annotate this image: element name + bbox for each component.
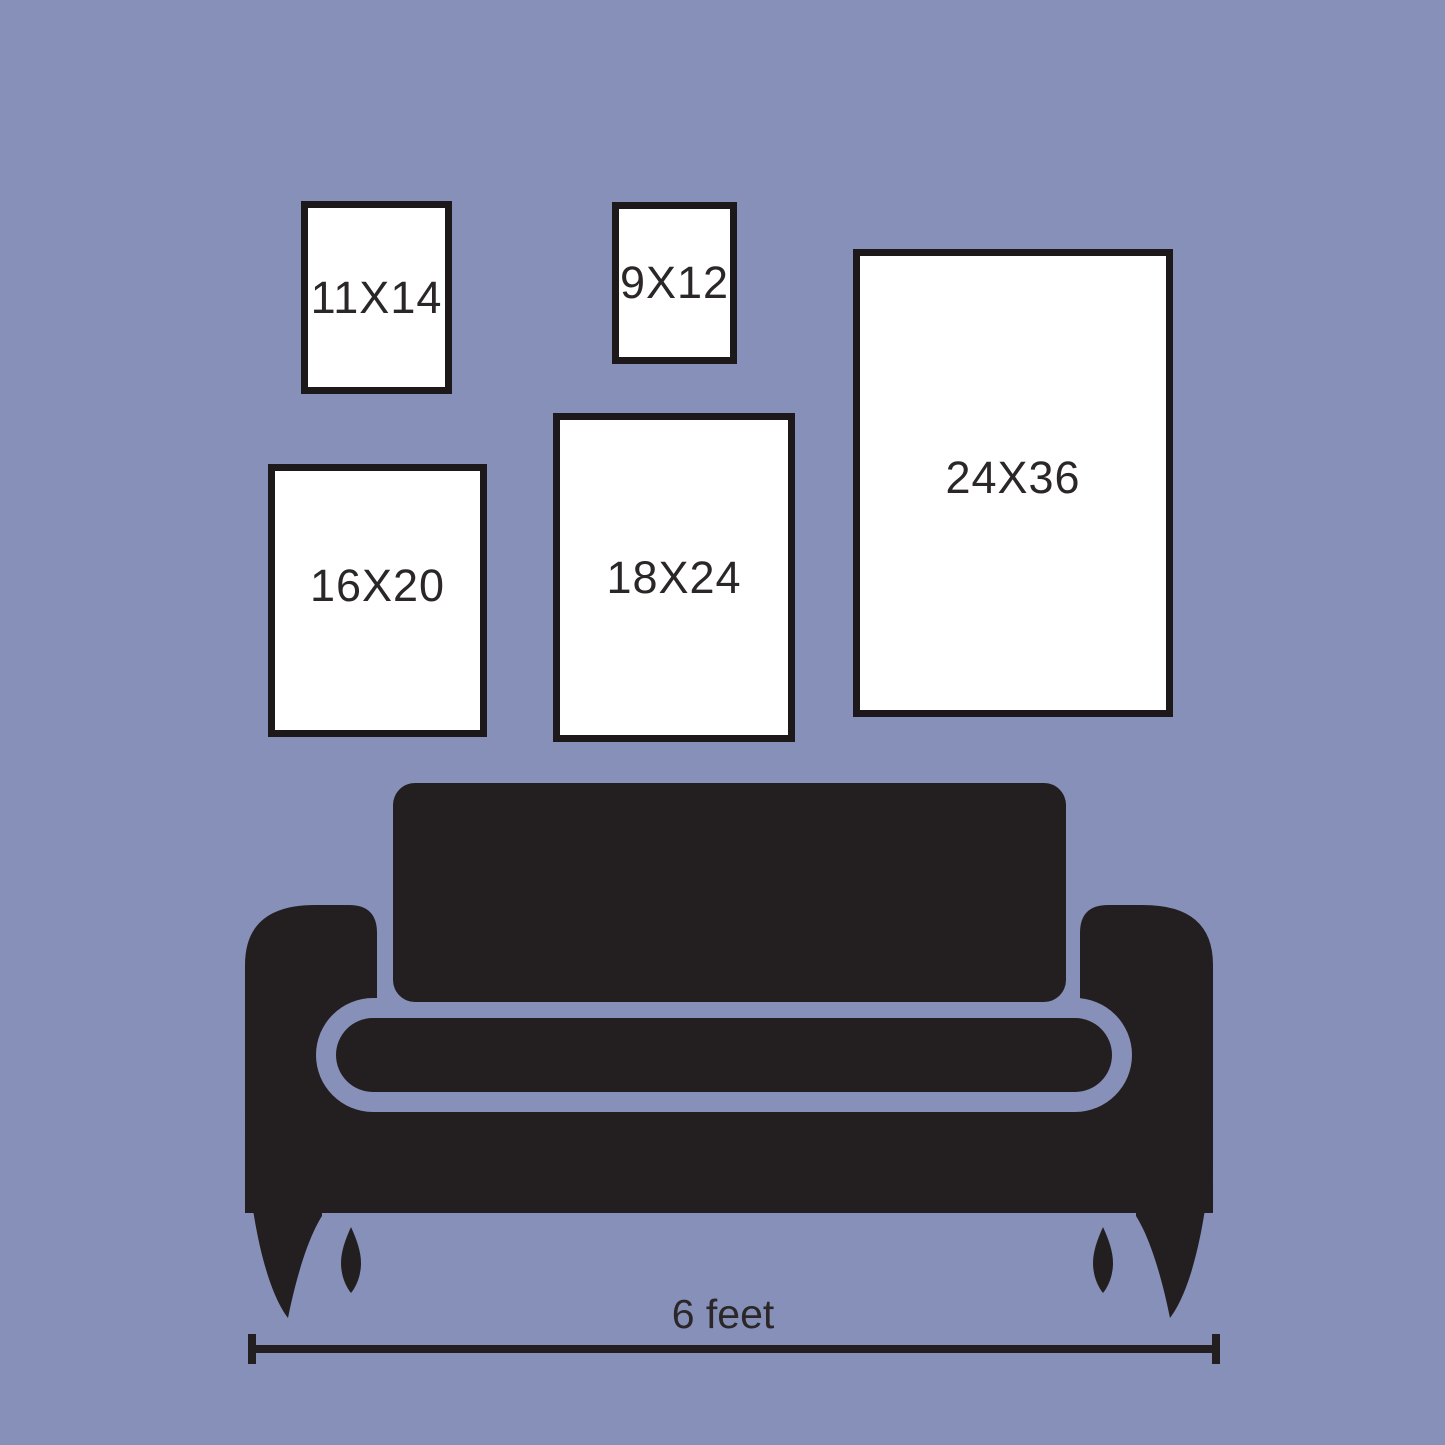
size-frame-label: 11X14	[311, 272, 443, 324]
size-frame-11x14: 11X14	[301, 201, 452, 394]
measurement-label: 6 feet	[672, 1291, 775, 1337]
sofa-right-leg	[1136, 1110, 1213, 1318]
size-frame-label: 9X12	[620, 257, 729, 309]
size-frame-label: 24X36	[945, 452, 1080, 504]
size-frame-18x24: 18X24	[553, 413, 795, 742]
size-guide-diagram: 6 feet 11X14 9X12 16X20 18X24 24X36	[0, 0, 1445, 1445]
sofa-inner-right-leg	[1093, 1227, 1113, 1293]
size-frame-24x36: 24X36	[853, 249, 1173, 717]
sofa-seat-cushion	[336, 1018, 1112, 1092]
sofa-silhouette	[245, 783, 1213, 1318]
measurement-right-cap	[1212, 1334, 1220, 1364]
measurement: 6 feet	[248, 1291, 1220, 1364]
size-frame-16x20: 16X20	[268, 464, 487, 737]
size-frame-label: 16X20	[310, 560, 445, 612]
sofa-left-leg	[245, 1110, 322, 1318]
measurement-line	[252, 1345, 1216, 1353]
size-frame-label: 18X24	[606, 552, 741, 604]
sofa-inner-left-leg	[341, 1227, 361, 1293]
size-frame-9x12: 9X12	[612, 202, 737, 364]
measurement-left-cap	[248, 1334, 256, 1364]
sofa-backrest	[393, 783, 1066, 1002]
